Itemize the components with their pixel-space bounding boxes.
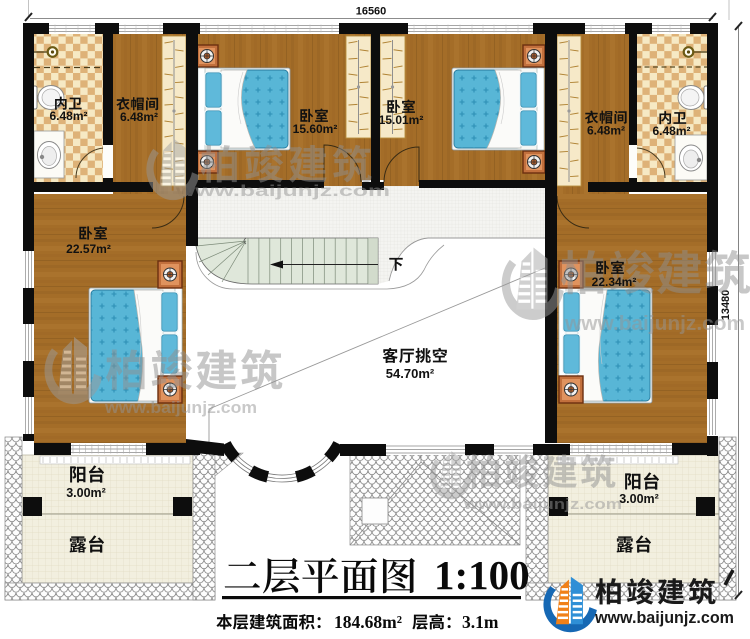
svg-text:15.60m²: 15.60m² [293,122,338,136]
svg-text:3.1m: 3.1m [462,612,499,632]
svg-text:22.57m²: 22.57m² [66,242,111,256]
svg-text:16560: 16560 [356,6,387,18]
svg-text:6.48m²: 6.48m² [49,109,87,123]
svg-text:1:100: 1:100 [434,552,530,598]
svg-text:www.baijunjz.com: www.baijunjz.com [564,313,745,335]
svg-text:www.baijunjz.com: www.baijunjz.com [174,183,390,200]
svg-text:184.68m²: 184.68m² [334,612,402,632]
svg-text:www.baijunjz.com: www.baijunjz.com [594,608,734,627]
svg-text:15.01m²: 15.01m² [379,113,424,127]
svg-text:22.34m²: 22.34m² [592,275,637,289]
svg-text:6.48m²: 6.48m² [120,110,158,124]
svg-text:6.48m²: 6.48m² [587,124,625,138]
svg-text:3.00m²: 3.00m² [66,486,106,500]
svg-text:54.70m²: 54.70m² [386,366,435,381]
svg-text:6.48m²: 6.48m² [652,124,690,138]
svg-text:www.baijunjz.com: www.baijunjz.com [104,398,257,417]
svg-text:www.baijunjz.com: www.baijunjz.com [463,496,622,513]
svg-text:3.00m²: 3.00m² [619,492,659,506]
